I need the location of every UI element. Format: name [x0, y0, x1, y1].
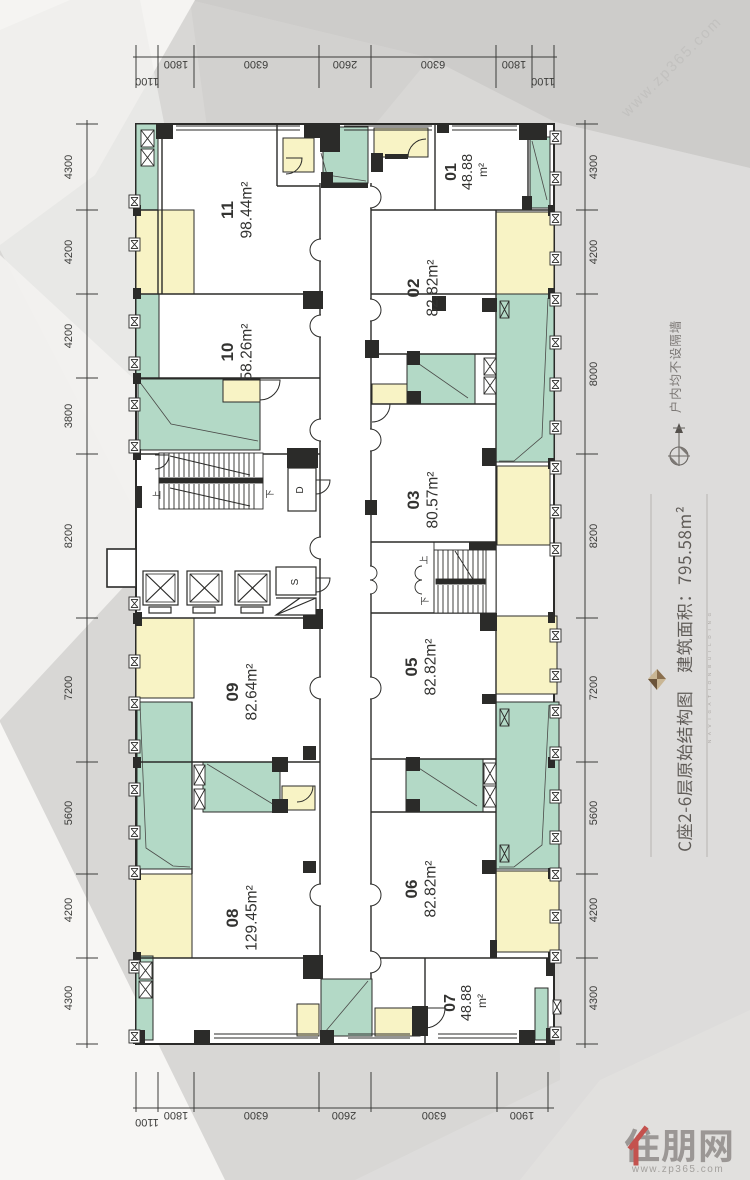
svg-text:7200: 7200 — [588, 676, 600, 700]
svg-text:6300: 6300 — [244, 1109, 268, 1121]
svg-text:6300: 6300 — [422, 1109, 446, 1121]
svg-text:6300: 6300 — [244, 58, 268, 70]
svg-text:5600: 5600 — [588, 801, 600, 825]
svg-text:4300: 4300 — [588, 155, 600, 179]
svg-text:98.44m²: 98.44m² — [239, 182, 256, 239]
svg-text:82.82m²: 82.82m² — [425, 260, 442, 317]
svg-text:5600: 5600 — [63, 801, 75, 825]
svg-text:8200: 8200 — [588, 524, 600, 548]
svg-text:129.45m²: 129.45m² — [244, 885, 261, 950]
svg-text:4200: 4200 — [63, 324, 75, 348]
svg-text:1100: 1100 — [135, 75, 159, 87]
svg-text:m²: m² — [475, 994, 489, 1008]
svg-text:8000: 8000 — [588, 362, 600, 386]
svg-text:4300: 4300 — [63, 155, 75, 179]
svg-text:82.82m²: 82.82m² — [423, 639, 440, 696]
svg-text:4200: 4200 — [588, 898, 600, 922]
svg-text:2600: 2600 — [333, 58, 357, 70]
svg-text:01: 01 — [443, 163, 460, 181]
svg-text:1800: 1800 — [164, 1109, 188, 1121]
svg-text:06: 06 — [402, 880, 421, 899]
svg-text:02: 02 — [404, 279, 423, 298]
svg-text:7200: 7200 — [63, 676, 75, 700]
svg-text:82.82m²: 82.82m² — [423, 861, 440, 918]
svg-text:1800: 1800 — [502, 58, 526, 70]
svg-text:4200: 4200 — [588, 240, 600, 264]
svg-text:4200: 4200 — [63, 898, 75, 922]
svg-text:08: 08 — [223, 909, 242, 928]
svg-text:07: 07 — [442, 994, 459, 1012]
svg-text:1100: 1100 — [135, 1116, 159, 1128]
svg-text:82.64m²: 82.64m² — [244, 664, 261, 721]
svg-text:2600: 2600 — [332, 1109, 356, 1121]
svg-text:1100: 1100 — [531, 75, 555, 87]
svg-text:48.88: 48.88 — [460, 154, 476, 190]
svg-text:www.zp365.com: www.zp365.com — [631, 1164, 724, 1175]
svg-text:11: 11 — [218, 201, 237, 219]
svg-text:6300: 6300 — [421, 58, 445, 70]
svg-text:4200: 4200 — [63, 240, 75, 264]
svg-text:1900: 1900 — [510, 1109, 534, 1121]
svg-text:03: 03 — [404, 491, 423, 510]
svg-text:48.88: 48.88 — [459, 985, 475, 1021]
svg-text:8200: 8200 — [63, 524, 75, 548]
svg-text:10: 10 — [218, 343, 237, 362]
svg-text:09: 09 — [223, 683, 242, 702]
svg-text:N A V I G A T I O N B U I L: N A V I G A T I O N B U I L D I N G — [707, 611, 712, 743]
svg-text:4300: 4300 — [63, 986, 75, 1010]
svg-text:1800: 1800 — [164, 58, 188, 70]
svg-text:3800: 3800 — [63, 404, 75, 428]
svg-text:05: 05 — [402, 658, 421, 677]
svg-text:m²: m² — [476, 163, 490, 177]
svg-text:58.26m²: 58.26m² — [239, 324, 256, 381]
svg-text:80.57m²: 80.57m² — [425, 472, 442, 529]
svg-text:S: S — [290, 578, 301, 585]
svg-text:4300: 4300 — [588, 986, 600, 1010]
svg-text:D: D — [295, 486, 306, 493]
